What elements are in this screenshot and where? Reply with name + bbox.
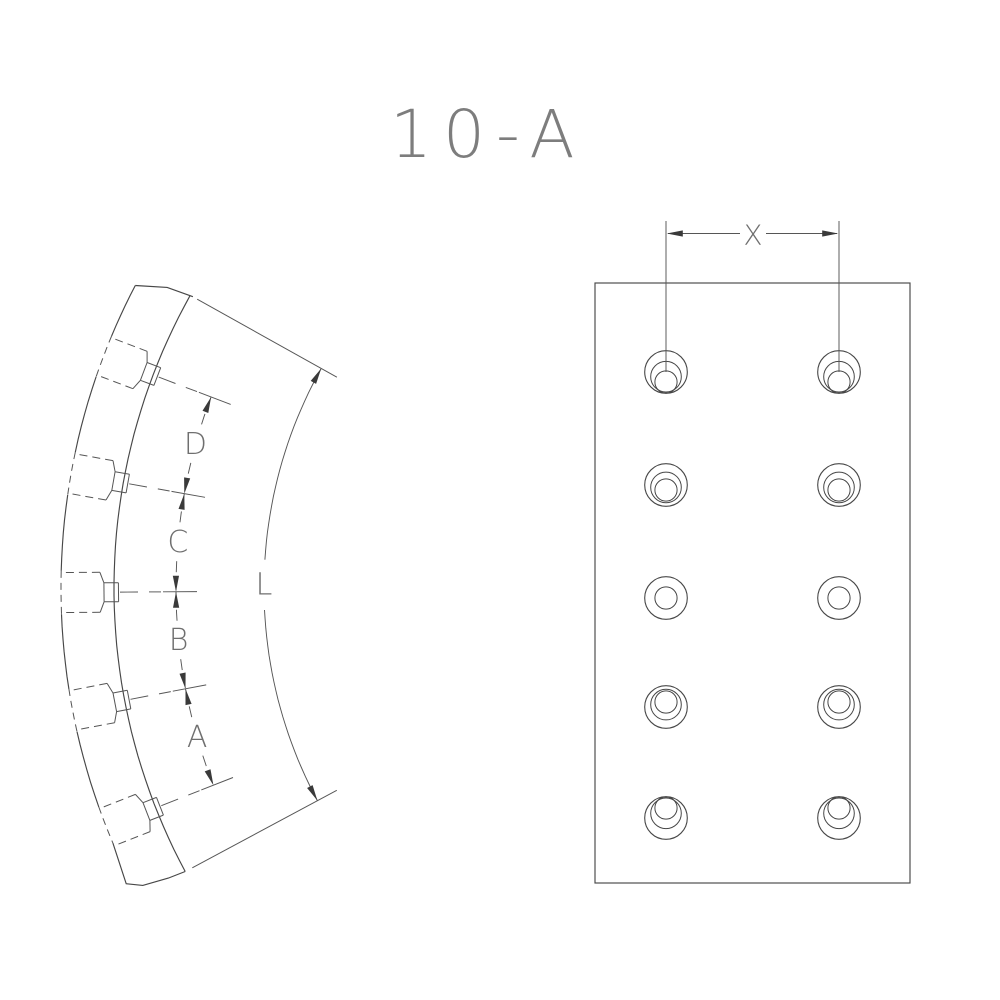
top-end-cut xyxy=(135,286,193,297)
counterbore-taper xyxy=(100,602,104,613)
through-hole-cap xyxy=(113,693,117,712)
through-hole-circle xyxy=(828,797,850,819)
dim-label-C: C xyxy=(167,525,188,560)
L-dim-arc xyxy=(265,610,318,801)
chain-arrow xyxy=(203,397,212,413)
X-arrow-left xyxy=(667,230,683,236)
counterbore-taper xyxy=(115,712,117,723)
counterbore-taper xyxy=(106,490,112,500)
through-hole-edge xyxy=(115,472,129,475)
counterbore-edge xyxy=(114,339,148,352)
chain-arrow xyxy=(186,689,192,705)
centerline-dash xyxy=(188,791,199,795)
through-hole-cap xyxy=(127,690,131,709)
through-hole-circle xyxy=(655,587,677,609)
outer-arc xyxy=(61,495,67,571)
counterbore-taper xyxy=(107,683,113,693)
rivet-hole-row2-col2 xyxy=(818,464,861,507)
lining-outline-rect xyxy=(595,283,910,883)
through-hole-edge xyxy=(147,363,161,368)
centerline-dash xyxy=(158,489,170,491)
through-hole-cap xyxy=(112,472,115,491)
X-arrow-right xyxy=(822,230,838,236)
rivet-hole-row3-col1 xyxy=(645,577,688,620)
counterbore-taper xyxy=(135,794,143,802)
through-hole-cap xyxy=(140,363,147,381)
counterbore-edge xyxy=(71,494,106,500)
chain-arrow xyxy=(205,769,214,785)
chain-arrow xyxy=(180,673,186,689)
dim-label-X: X xyxy=(743,219,762,252)
centerline-tick xyxy=(131,696,149,699)
rivet-hole-row5-col2 xyxy=(818,797,861,840)
through-hole-circle xyxy=(828,371,850,393)
chain-arrow xyxy=(184,477,190,493)
centerline-tick xyxy=(161,799,178,806)
through-hole-circle xyxy=(655,371,677,393)
cad-canvas: DCBAL X xyxy=(0,0,1000,1000)
through-hole-circle xyxy=(828,479,850,501)
outer-arc-hidden xyxy=(61,571,62,614)
dim-label-D: D xyxy=(184,427,207,462)
centerline-tick xyxy=(129,484,147,487)
through-hole-edge xyxy=(143,797,157,802)
centerline-dash xyxy=(186,387,197,391)
through-hole-circle xyxy=(828,691,850,713)
centerline-dash xyxy=(159,692,171,694)
through-hole-edge xyxy=(140,380,154,385)
counterbore-taper xyxy=(133,380,141,388)
counterbore-bottom-circle xyxy=(824,798,855,829)
drawing-sheet: 10-A DCBAL X xyxy=(0,0,1000,1000)
outer-arc-hidden xyxy=(69,689,77,732)
extension-tick xyxy=(199,392,231,404)
counterbore-edge xyxy=(99,376,133,389)
outer-arc xyxy=(75,377,96,453)
dim-label-B: B xyxy=(169,623,189,658)
extension-tick xyxy=(172,491,206,497)
counterbore-taper xyxy=(100,572,104,583)
rivet-hole-row3-col2 xyxy=(818,577,861,620)
side-view-curved-lining: DCBAL xyxy=(61,286,337,886)
counterbore-edge xyxy=(72,683,107,690)
through-hole-edge xyxy=(112,490,126,493)
through-hole-circle xyxy=(655,691,677,713)
counterbore-edge xyxy=(79,723,114,730)
extension-tick xyxy=(201,778,233,790)
through-hole-edge xyxy=(117,709,131,712)
L-arrow-bottom xyxy=(307,785,317,801)
through-hole-edge xyxy=(150,815,164,820)
rivet-hole-row2-col1 xyxy=(645,464,688,507)
rivet-hole-row4-col1 xyxy=(645,686,688,729)
chain-arrow xyxy=(173,576,179,592)
through-hole-edge xyxy=(113,690,127,693)
counterbore-edge xyxy=(78,454,113,460)
rivet-hole-profile-1 xyxy=(99,339,230,405)
through-hole-cap xyxy=(126,474,129,493)
through-hole-circle xyxy=(655,797,677,819)
through-hole-cap xyxy=(143,803,150,821)
chain-arrow xyxy=(179,494,185,510)
counterbore-circle xyxy=(818,577,861,620)
L-extension-bottom xyxy=(192,790,336,868)
outer-arc xyxy=(62,614,69,689)
outer-arc-hidden xyxy=(96,336,111,377)
front-view-hole-pattern: X xyxy=(595,219,910,884)
counterbore-edge xyxy=(117,832,151,845)
dim-label-L: L xyxy=(256,567,273,602)
rivet-hole-row5-col1 xyxy=(645,797,688,840)
through-hole-circle xyxy=(655,479,677,501)
outer-arc xyxy=(112,286,136,337)
counterbore-taper xyxy=(113,461,115,472)
chain-arrow xyxy=(173,592,179,608)
L-dim-arc xyxy=(265,369,321,560)
through-hole-circle xyxy=(828,587,850,609)
outer-arc-hidden xyxy=(68,452,76,495)
outer-arc xyxy=(77,732,99,807)
counterbore-bottom-circle xyxy=(651,798,682,829)
rivet-hole-row4-col2 xyxy=(818,686,861,729)
outer-arc-hidden xyxy=(99,807,113,843)
counterbore-circle xyxy=(645,577,688,620)
centerline-tick xyxy=(159,377,176,383)
inner-arc xyxy=(114,295,190,871)
L-extension-top xyxy=(197,299,337,377)
counterbore-edge xyxy=(102,794,135,807)
dim-label-A: A xyxy=(187,720,208,755)
L-arrow-top xyxy=(311,369,322,384)
extension-tick xyxy=(173,685,206,691)
